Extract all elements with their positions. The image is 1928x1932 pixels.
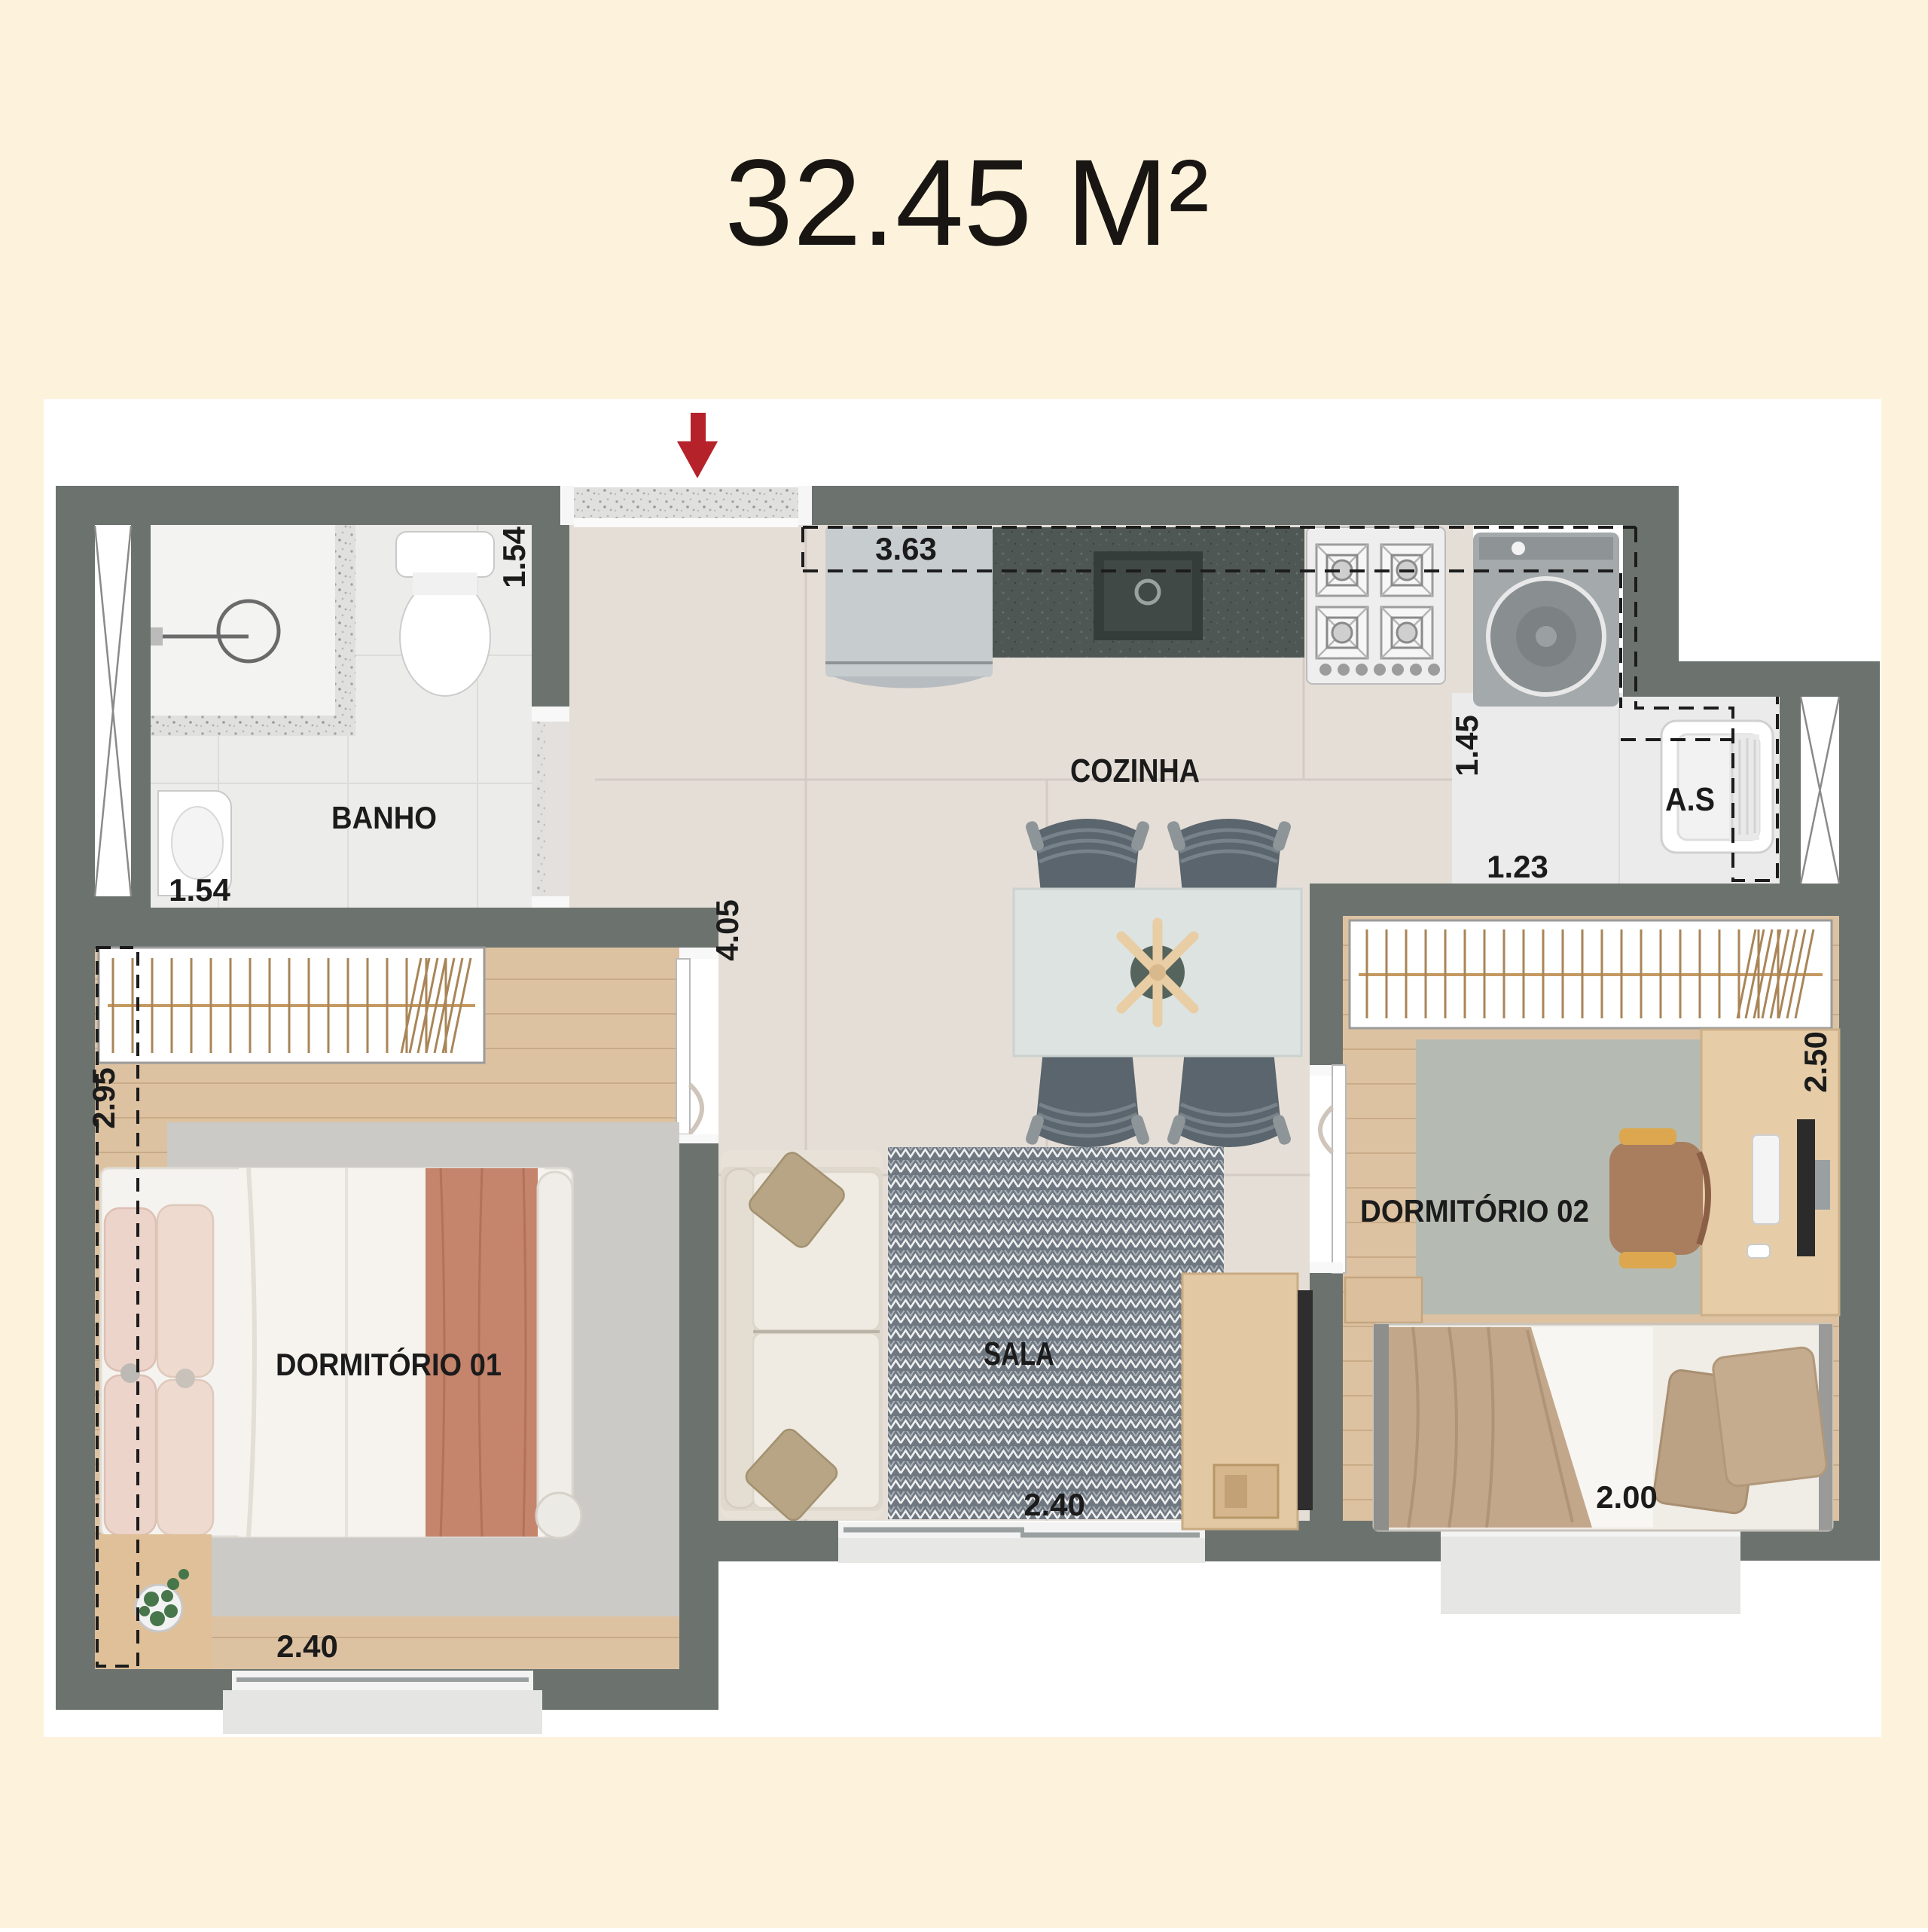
svg-text:2.40: 2.40 (1023, 1487, 1085, 1522)
svg-text:4.05: 4.05 (709, 899, 745, 961)
svg-text:1.23: 1.23 (1487, 849, 1548, 884)
svg-text:COZINHA: COZINHA (1070, 752, 1200, 789)
svg-text:3.63: 3.63 (875, 531, 937, 566)
svg-text:2.50: 2.50 (1798, 1031, 1833, 1093)
svg-text:2.00: 2.00 (1596, 1479, 1658, 1515)
svg-text:1.54: 1.54 (496, 526, 532, 588)
svg-text:SALA: SALA (984, 1335, 1054, 1372)
svg-text:1.45: 1.45 (1449, 715, 1484, 777)
svg-text:2.95: 2.95 (86, 1067, 121, 1129)
svg-text:2.40: 2.40 (276, 1628, 338, 1664)
svg-text:BANHO: BANHO (331, 800, 437, 835)
svg-text:A.S: A.S (1665, 781, 1715, 818)
svg-text:DORMITÓRIO 02: DORMITÓRIO 02 (1360, 1192, 1589, 1228)
svg-text:DORMITÓRIO 01: DORMITÓRIO 01 (276, 1346, 502, 1382)
svg-text:32.45 M²: 32.45 M² (725, 133, 1209, 271)
svg-text:1.54: 1.54 (169, 872, 230, 908)
